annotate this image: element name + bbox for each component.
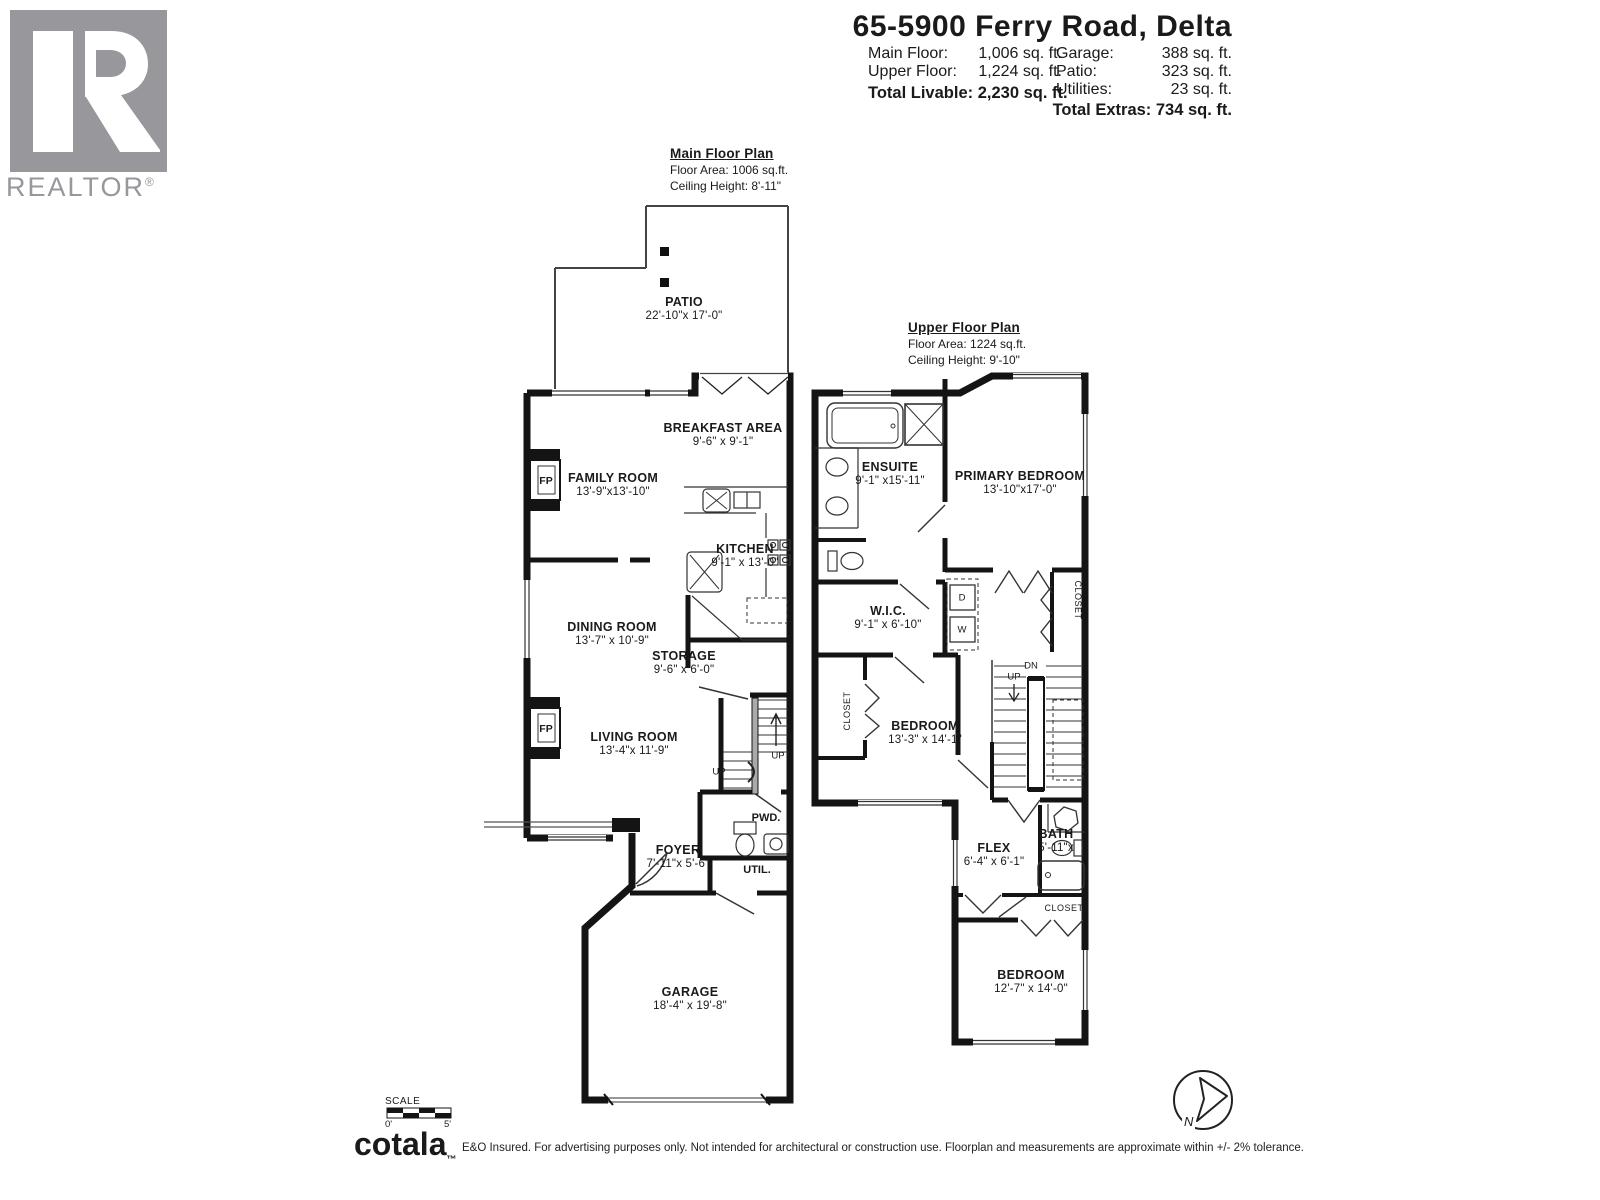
- stat-utilities-value: 23 sq. ft.: [1100, 81, 1232, 99]
- trademark-mark: ™: [446, 1154, 456, 1165]
- porch-lines: [484, 822, 612, 827]
- room-label-garage: GARAGE 18'-4" x 19'-8": [653, 985, 727, 1014]
- stat-garage-value: 388 sq. ft.: [1100, 45, 1232, 63]
- room-label-dining-room: DINING ROOM 13'-7" x 10'-9": [567, 620, 656, 649]
- french-doors: [699, 373, 788, 395]
- closet-label: CLOSET: [1073, 580, 1083, 619]
- realtor-logo-icon: [10, 10, 167, 172]
- room-label-storage: STORAGE 9'-6" x 6'-0": [652, 649, 716, 678]
- toilet-icon: [828, 551, 837, 571]
- patio-posts: [660, 247, 669, 287]
- main-floor-plan: [484, 206, 790, 1105]
- stat-upper-floor-value: 1,224 sq. ft.: [930, 63, 1062, 81]
- upper-floor-area: Floor Area: 1224 sq.ft.: [908, 337, 1026, 351]
- main-floor-ceiling: Ceiling Height: 8'-11": [670, 179, 788, 193]
- stairs-up-label: UP: [712, 767, 725, 778]
- laundry-units: [947, 579, 978, 650]
- dryer-label: D: [959, 593, 966, 604]
- sink-icon: [826, 458, 848, 476]
- upper-floor-plan-header: Upper Floor Plan Floor Area: 1224 sq.ft.…: [908, 320, 1026, 367]
- stat-patio-label: Patio:: [1056, 63, 1097, 81]
- sink-icon: [764, 834, 788, 854]
- realtor-word: REALTOR: [6, 172, 145, 202]
- toilet-icon: [1074, 840, 1082, 856]
- room-label-patio: PATIO 22'-10"x 17'-0": [646, 295, 723, 324]
- main-floor-area: Floor Area: 1006 sq.ft.: [670, 163, 788, 177]
- cotala-word: cotala: [354, 1126, 446, 1162]
- room-label-bath: BATH 5'-11"x: [1038, 827, 1074, 856]
- realtor-wordmark: REALTOR®: [6, 172, 156, 203]
- stat-patio-value: 323 sq. ft.: [1100, 63, 1232, 81]
- stat-total-extras: Total Extras: 734 sq. ft.: [1053, 101, 1232, 120]
- stat-total-livable: Total Livable: 2,230 sq. ft.: [868, 84, 1068, 103]
- room-label-bedroom-3: BEDROOM 12'-7" x 14'-0": [994, 968, 1068, 997]
- room-label-family-room: FAMILY ROOM 13'-9"x13'-10": [568, 471, 658, 500]
- washer-label: W: [958, 625, 967, 636]
- floorplan-drawing: [0, 0, 1600, 1200]
- room-label-flex: FLEX 6'-4" x 6'-1": [964, 841, 1025, 870]
- north-label: N: [1182, 1114, 1195, 1129]
- stairs-down-label: DN: [1024, 661, 1038, 672]
- sink-icon: [826, 497, 848, 515]
- stairs-up-label: UP: [1007, 672, 1020, 683]
- powder-room-fixtures: [734, 822, 788, 856]
- room-label-kitchen: KITCHEN 9'-1" x 13'-0": [711, 542, 778, 571]
- stat-main-floor-value: 1,006 sq. ft.: [930, 45, 1062, 63]
- disclaimer-text: E&O Insured. For advertising purposes on…: [462, 1142, 1304, 1154]
- closet-label: CLOSET: [1044, 903, 1083, 913]
- upper-stairs: [994, 666, 1083, 792]
- room-label-breakfast-area: BREAKFAST AREA 9'-6" x 9'-1": [663, 421, 782, 450]
- room-label-living-room: LIVING ROOM 13'-4"x 11'-9": [590, 730, 677, 759]
- porch-post: [612, 818, 640, 832]
- room-label-utility: UTIL.: [743, 864, 771, 876]
- bathtub-icon: [1038, 861, 1084, 890]
- room-label-foyer: FOYER 7'-11"x 5'-6": [647, 843, 710, 872]
- page-title: 65-5900 Ferry Road, Delta: [853, 10, 1232, 44]
- closet-label: CLOSET: [842, 691, 852, 730]
- room-label-ensuite: ENSUITE 9'-1" x15'-11": [855, 460, 924, 489]
- registered-mark: ®: [145, 175, 156, 189]
- upper-floor-plan-title: Upper Floor Plan: [908, 320, 1026, 335]
- fireplace-label: FP: [539, 475, 552, 487]
- cotala-logo: cotala™: [354, 1126, 456, 1165]
- room-label-bedroom-2: BEDROOM 13'-3" x 14'-1": [888, 719, 962, 748]
- scale-bar-icon: [387, 1108, 451, 1118]
- main-floor-plan-header: Main Floor Plan Floor Area: 1006 sq.ft. …: [670, 146, 788, 193]
- room-label-primary-bedroom: PRIMARY BEDROOM 13'-10"x17'-0": [955, 469, 1085, 498]
- room-label-wic: W.I.C. 9'-1" x 6'-10": [854, 604, 921, 633]
- bathtub-icon: [827, 403, 903, 448]
- fireplace-label: FP: [539, 723, 552, 735]
- main-stairs: [723, 698, 788, 794]
- upper-floor-ceiling: Ceiling Height: 9'-10": [908, 353, 1026, 367]
- garage-door: [604, 1094, 770, 1105]
- main-floor-plan-title: Main Floor Plan: [670, 146, 788, 161]
- stairs-up-label: UP: [771, 751, 784, 762]
- scale-label: SCALE: [385, 1096, 420, 1107]
- room-label-powder: PWD.: [752, 812, 781, 824]
